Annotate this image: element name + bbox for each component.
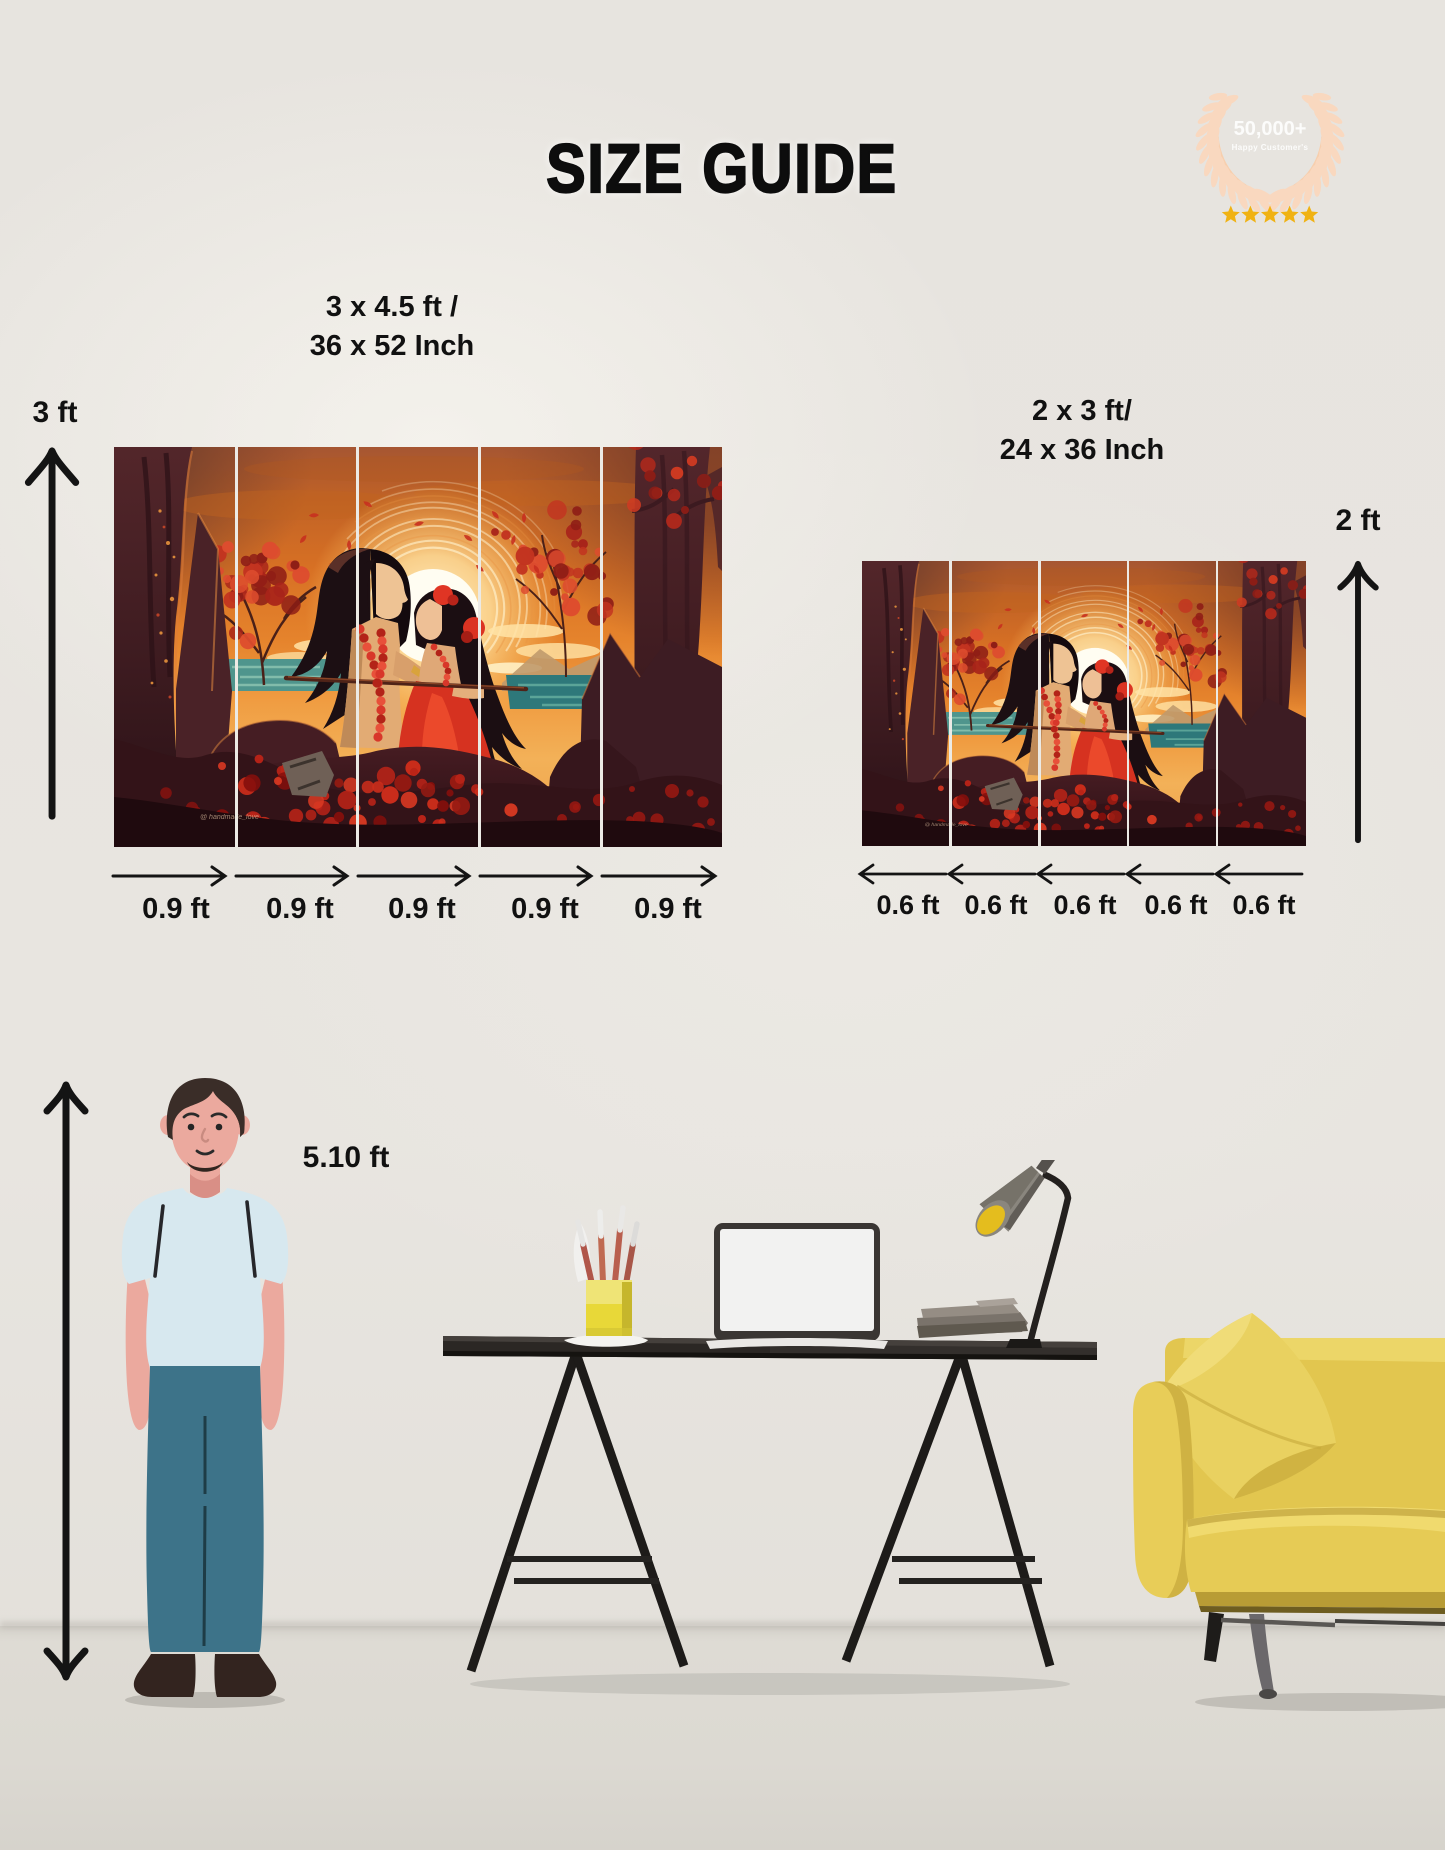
svg-text:Happy Customer's: Happy Customer's bbox=[1232, 143, 1309, 152]
svg-text:50,000+: 50,000+ bbox=[1234, 118, 1307, 140]
